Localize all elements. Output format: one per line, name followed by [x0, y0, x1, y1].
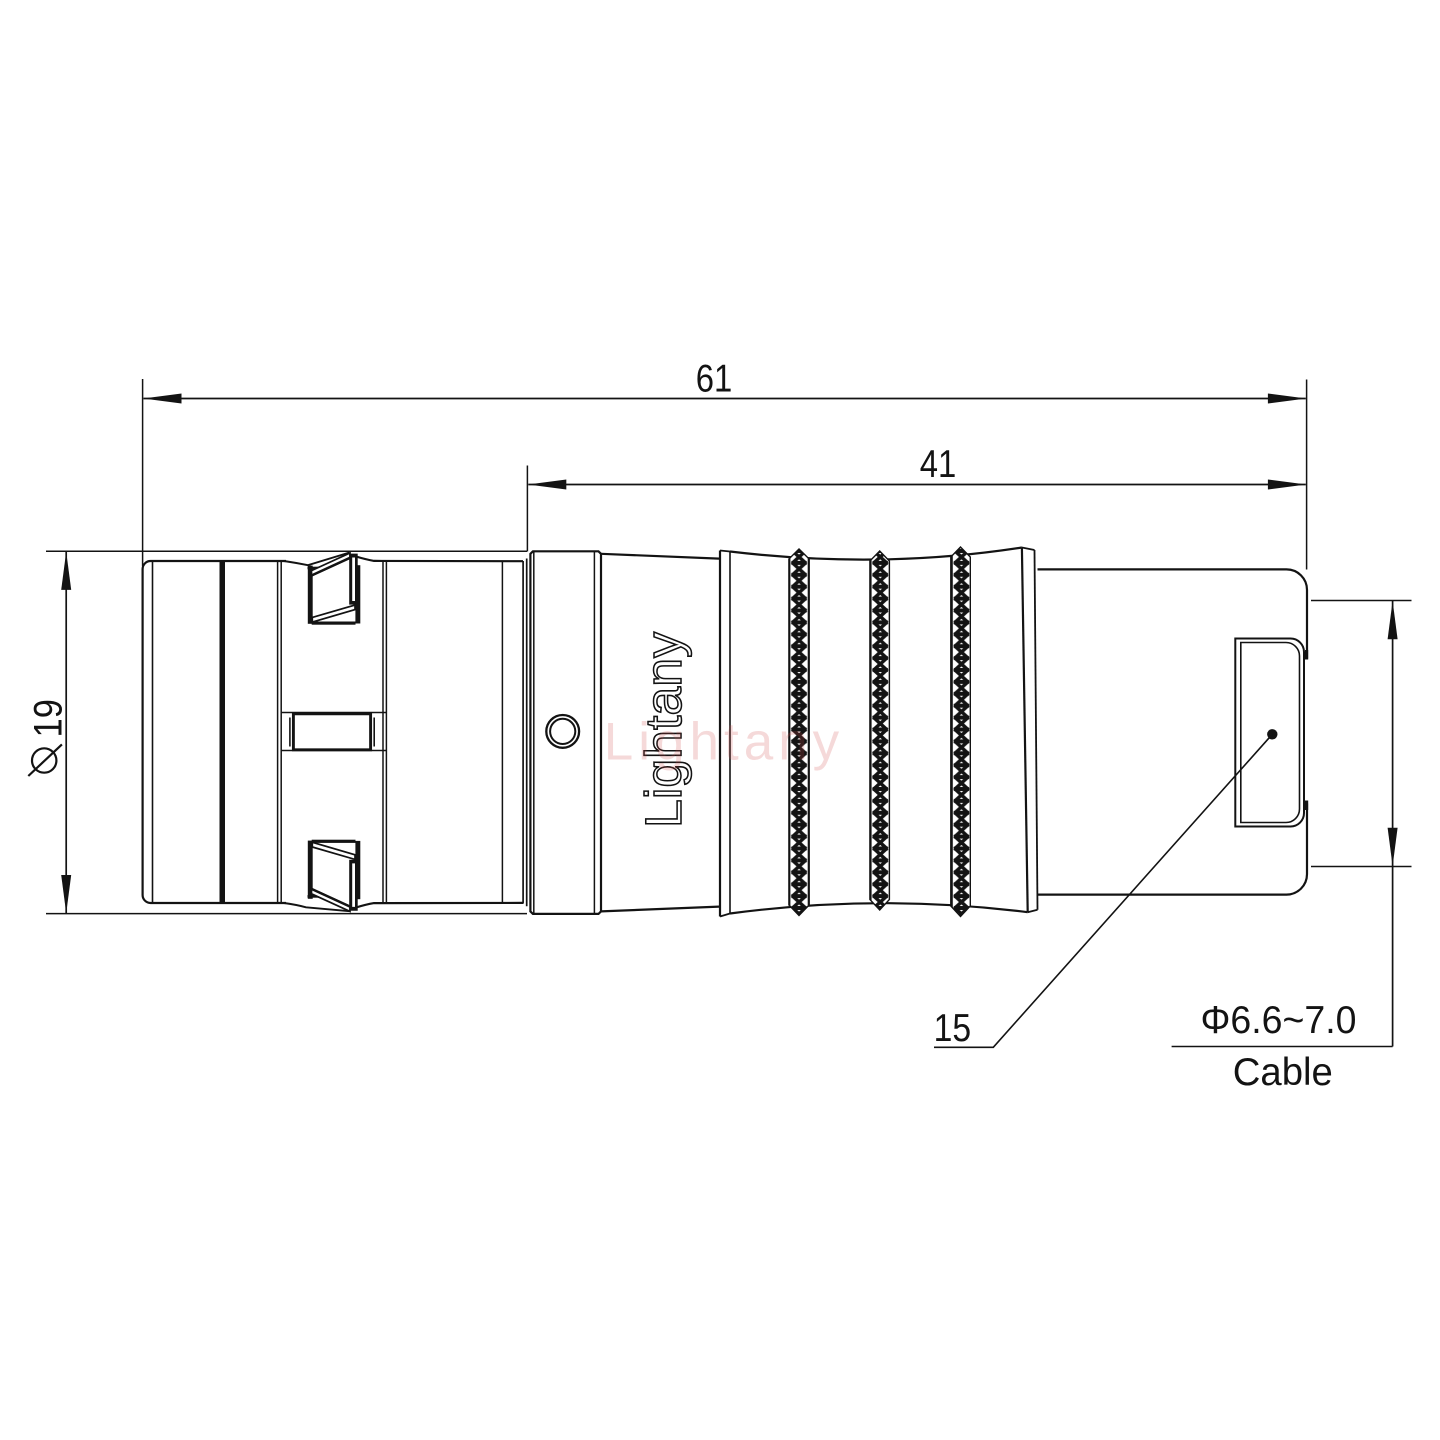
svg-text:Φ6.6~7.0: Φ6.6~7.0 — [1201, 999, 1357, 1042]
svg-text:41: 41 — [920, 443, 957, 486]
svg-text:Cable: Cable — [1233, 1051, 1333, 1094]
svg-text:Lightany: Lightany — [604, 713, 844, 772]
svg-text:15: 15 — [934, 1007, 972, 1050]
svg-text:61: 61 — [696, 358, 733, 401]
svg-text:19: 19 — [27, 699, 71, 737]
